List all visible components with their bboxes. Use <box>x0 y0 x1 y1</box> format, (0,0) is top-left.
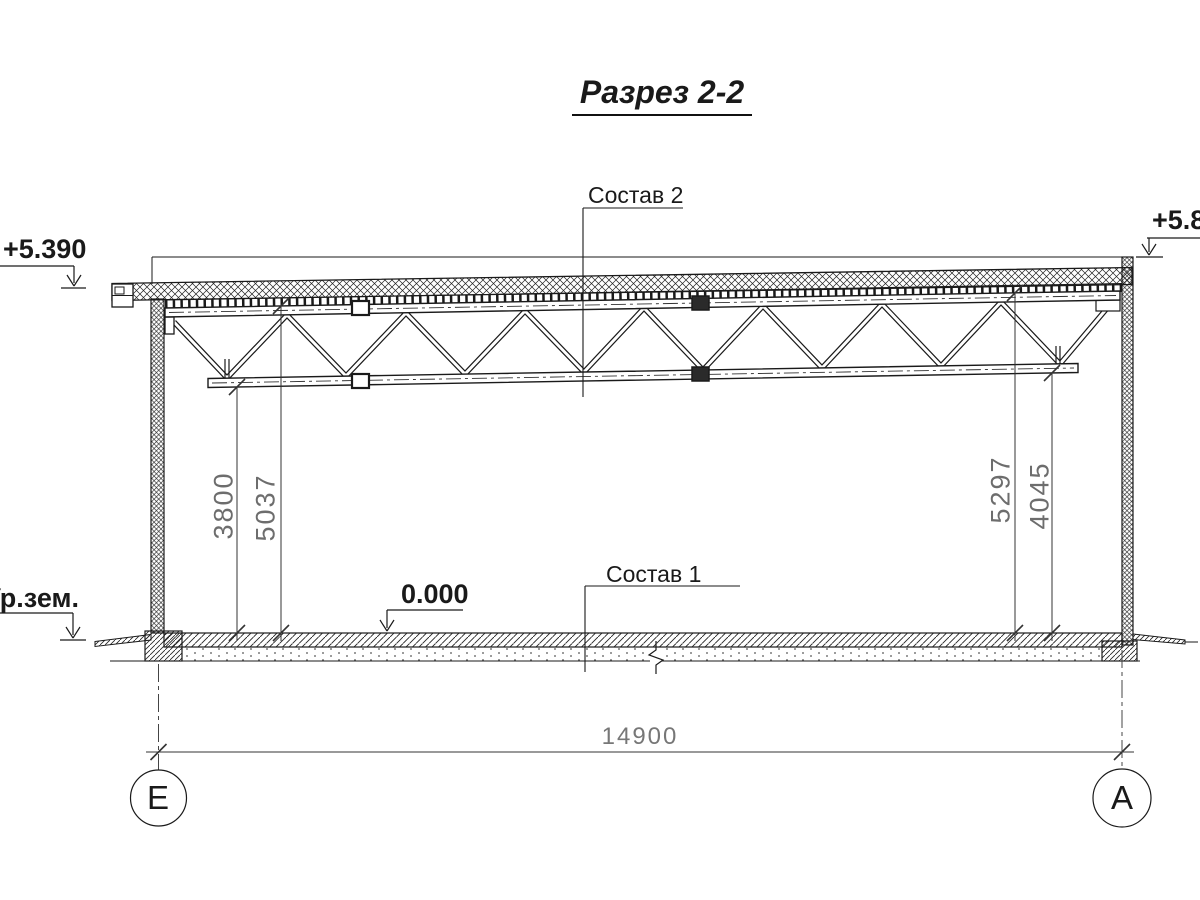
drawing-title: Разрез 2-2 <box>572 74 752 116</box>
truss-left-bearing <box>165 317 174 334</box>
right-foundation <box>1102 641 1137 661</box>
dim-left-truss-bottom: 3800 <box>209 441 240 571</box>
dim-left-truss-top: 5037 <box>251 443 282 573</box>
elevation-parapet-right: +5.87 <box>1152 205 1200 236</box>
roof-composition-callout: Состав 2 <box>588 182 683 209</box>
section-drawing-canvas <box>0 0 1200 900</box>
ground-left <box>95 635 151 647</box>
left-wall <box>151 299 164 633</box>
dim-right-truss-bottom: 4045 <box>1025 431 1056 561</box>
floor-assembly <box>95 631 1198 674</box>
dim-overall-span: 14900 <box>570 723 710 751</box>
truss-right-bearing <box>1096 300 1120 311</box>
right-wall <box>1122 257 1133 645</box>
ground-level-label: Ур.зем. <box>0 583 79 614</box>
floor-slab <box>164 633 1122 647</box>
drawing-sheet: { "title": "Разрез 2-2", "callouts": { "… <box>0 0 1200 900</box>
elevation-floor-zero: 0.000 <box>401 579 469 610</box>
ground-right <box>1133 634 1185 644</box>
elevation-roof-left: +5.390 <box>3 234 86 265</box>
roof-truss <box>165 291 1120 388</box>
floor-composition-callout: Состав 1 <box>606 561 701 588</box>
eaves-fascia <box>112 284 133 307</box>
base-layer <box>182 647 1102 661</box>
axis-letter-right: А <box>1092 779 1152 817</box>
dim-right-truss-top: 5297 <box>986 425 1017 555</box>
axis-letter-left: Е <box>128 779 188 817</box>
